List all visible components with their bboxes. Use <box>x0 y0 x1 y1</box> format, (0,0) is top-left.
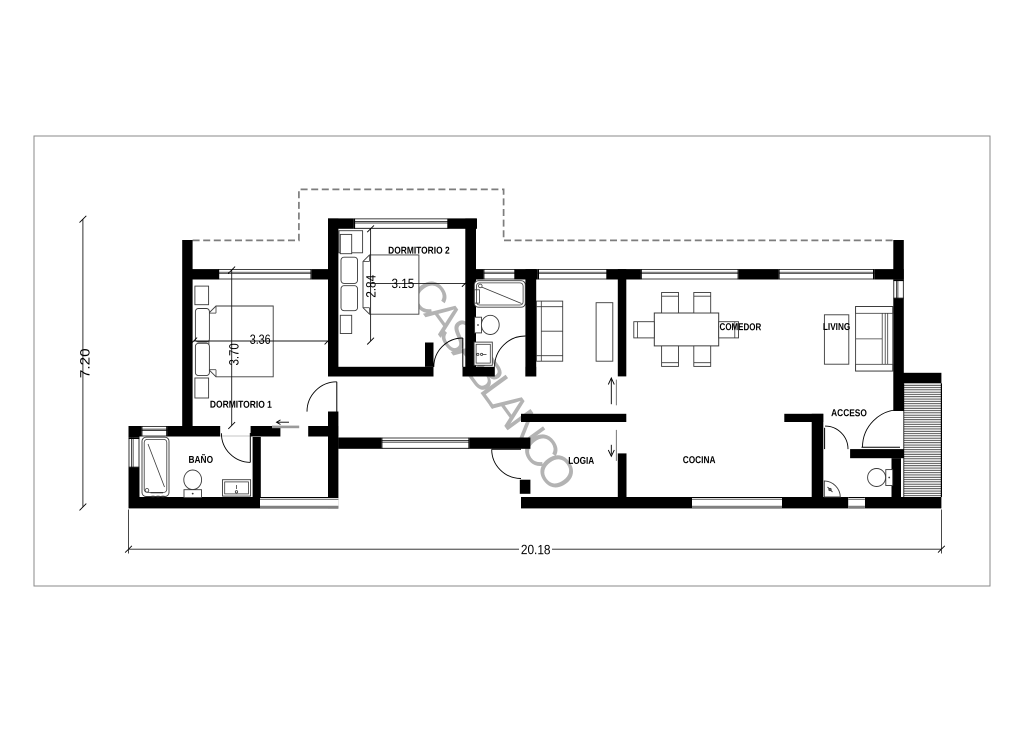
svg-text:DORMITORIO 1: DORMITORIO 1 <box>210 400 272 411</box>
svg-text:LOGIA: LOGIA <box>568 456 594 467</box>
svg-text:LIVING: LIVING <box>823 322 851 333</box>
svg-text:3.15: 3.15 <box>391 276 414 291</box>
svg-text:COCINA: COCINA <box>683 455 716 466</box>
svg-text:2.84: 2.84 <box>364 274 379 297</box>
svg-text:ACCESO: ACCESO <box>831 408 867 419</box>
svg-text:BAÑO: BAÑO <box>189 454 214 466</box>
svg-text:3.36: 3.36 <box>250 332 271 347</box>
svg-text:20.18: 20.18 <box>521 542 551 557</box>
svg-text:3.70: 3.70 <box>227 343 242 365</box>
svg-text:7.20: 7.20 <box>77 348 92 378</box>
svg-text:DORMITORIO 2: DORMITORIO 2 <box>388 246 450 257</box>
svg-text:COMEDOR: COMEDOR <box>720 322 762 333</box>
